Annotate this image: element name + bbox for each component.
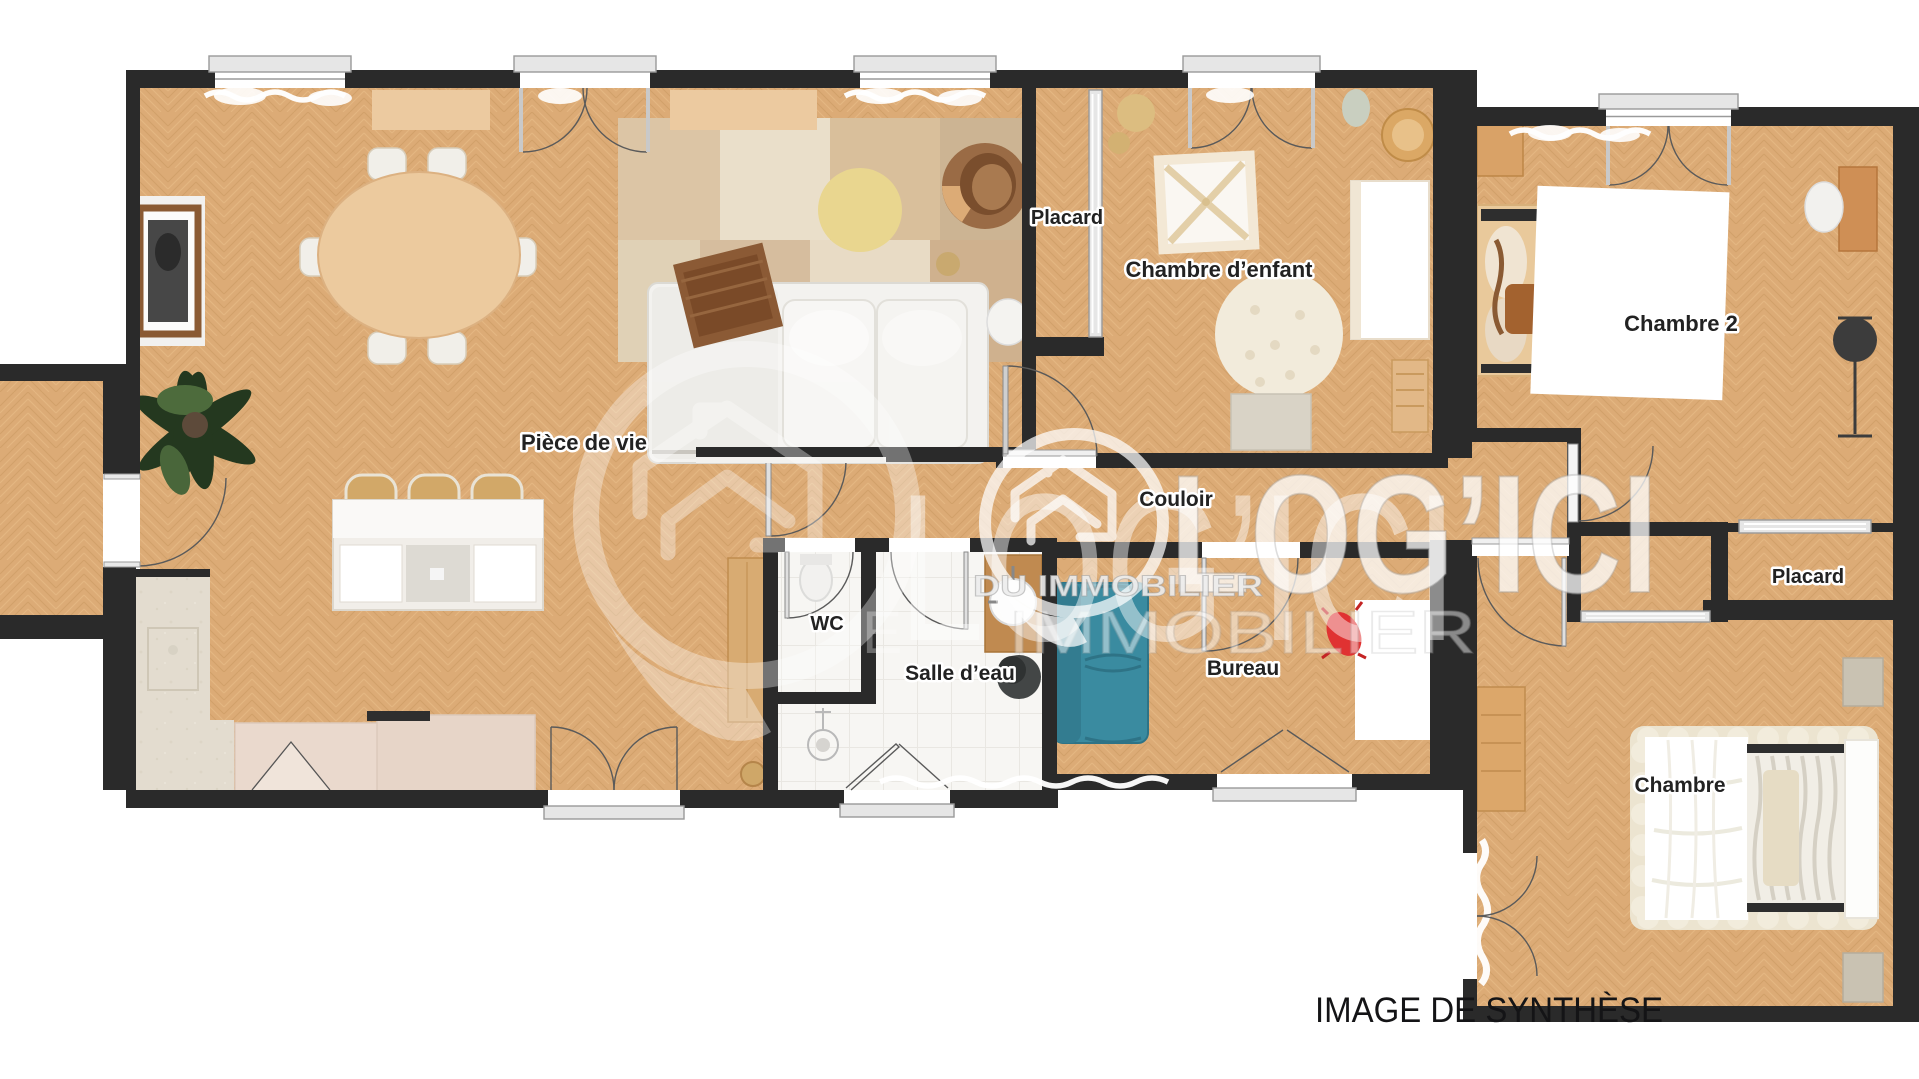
svg-text:Placard: Placard <box>1772 566 1844 588</box>
svg-text:Placard: Placard <box>1031 207 1103 229</box>
svg-text:Couloir: Couloir <box>1139 488 1213 511</box>
svg-text:WC: WC <box>810 613 843 635</box>
svg-text:DU IMMOBILIER: DU IMMOBILIER <box>973 570 1263 603</box>
svg-text:IMAGE DE SYNTHÈSE: IMAGE DE SYNTHÈSE <box>1315 991 1663 1030</box>
svg-text:Salle d’eau: Salle d’eau <box>905 662 1015 685</box>
svg-text:Chambre d’enfant: Chambre d’enfant <box>1125 257 1313 282</box>
svg-text:Bureau: Bureau <box>1207 657 1279 680</box>
svg-text:Chambre 2: Chambre 2 <box>1624 311 1738 336</box>
svg-text:Pièce de vie: Pièce de vie <box>521 430 647 455</box>
svg-text:E: E <box>862 599 902 666</box>
svg-text:Chambre: Chambre <box>1634 774 1725 797</box>
